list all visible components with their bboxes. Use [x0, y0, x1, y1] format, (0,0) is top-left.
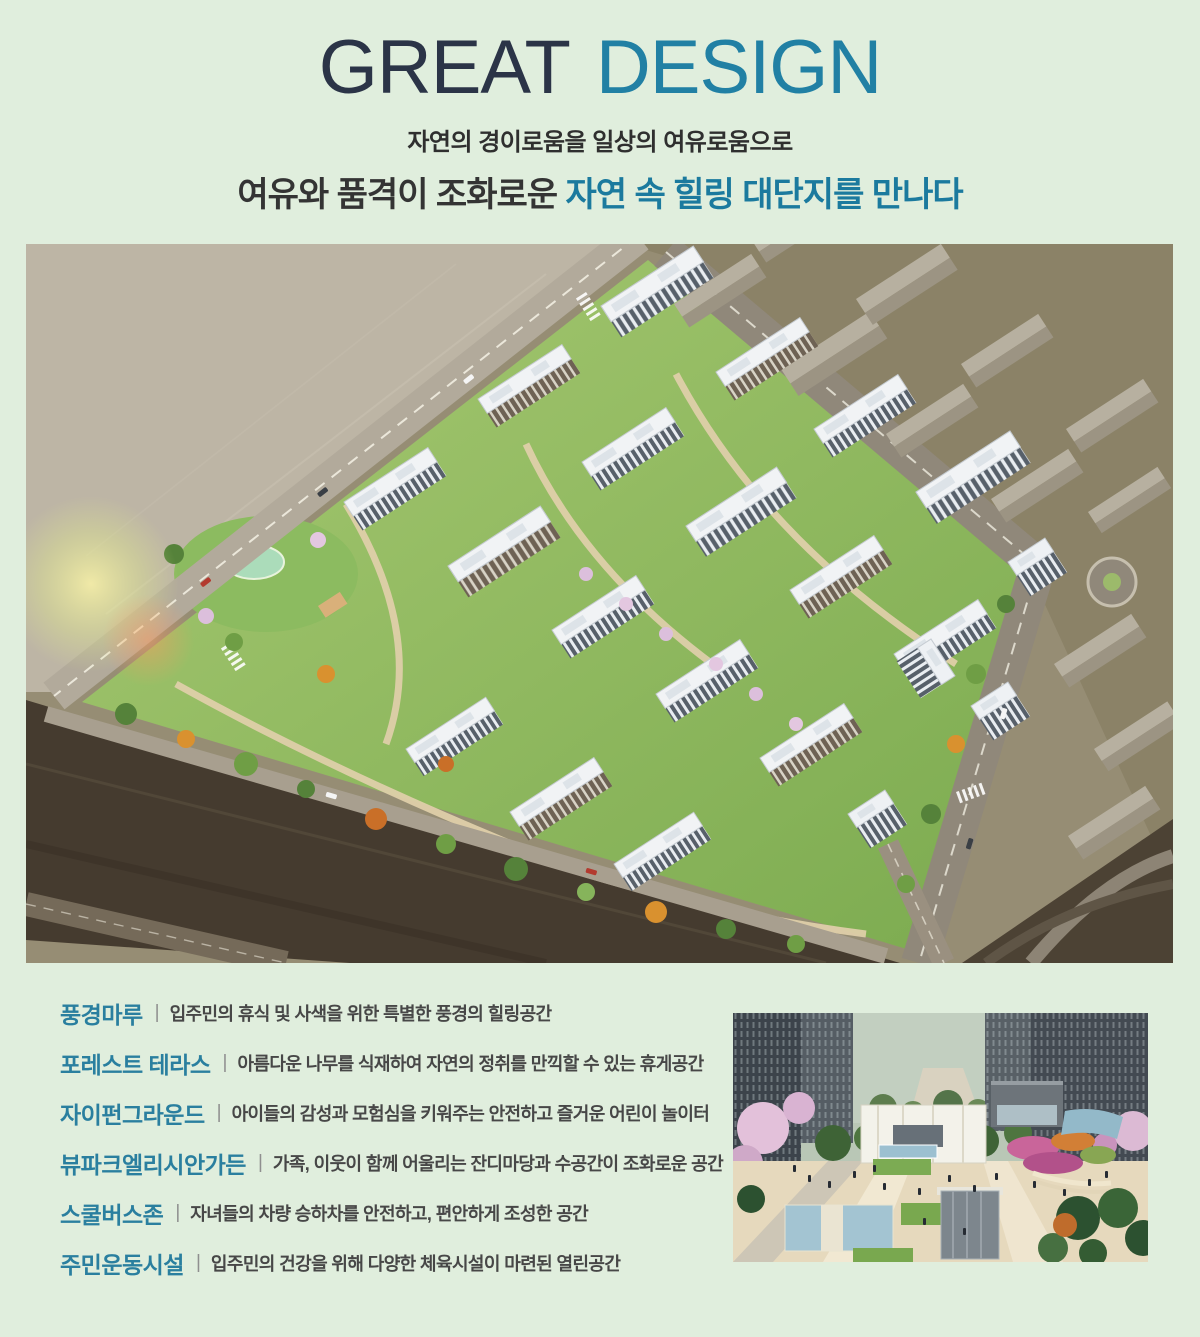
- feature-label: 포레스트 테라스: [60, 1046, 211, 1080]
- promo-page: GREATDESIGN 자연의 경이로움을 일상의 여유로움으로 여유와 품격이…: [0, 0, 1200, 1337]
- feature-description: 가족, 이웃이 함께 어울리는 잔디마당과 수공간이 조화로운 공간: [273, 1150, 723, 1176]
- title-design: DESIGN: [596, 25, 881, 110]
- headline: 여유와 품격이 조화로운 자연 속 힐링 대단지를 만나다: [0, 167, 1200, 216]
- feature-divider: |: [217, 1102, 222, 1124]
- feature-row: 주민운동시설 | 입주민의 건강을 위해 다양한 체육시설이 마련된 열린공간: [60, 1238, 720, 1288]
- community-garden-rendering: [733, 1013, 1148, 1262]
- feature-row: 스쿨버스존 | 자녀들의 차량 승하차를 안전하고, 편안하게 조성한 공간: [60, 1188, 720, 1238]
- headline-accent: 자연 속 힐링 대단지를 만나다: [565, 176, 962, 214]
- feature-description: 입주민의 건강을 위해 다양한 체육시설이 마련된 열린공간: [211, 1250, 620, 1276]
- subtitle: 자연의 경이로움을 일상의 여유로움으로: [0, 122, 1200, 157]
- header: GREATDESIGN 자연의 경이로움을 일상의 여유로움으로 여유와 품격이…: [0, 0, 1200, 216]
- feature-label: 스쿨버스존: [60, 1196, 163, 1230]
- garden-pavilion: [991, 1081, 1063, 1127]
- lens-flare: [102, 594, 194, 686]
- feature-label: 주민운동시설: [60, 1246, 184, 1280]
- feature-divider: |: [223, 1052, 228, 1074]
- feature-divider: |: [258, 1152, 263, 1174]
- feature-list: 풍경마루 | 입주민의 휴식 및 사색을 위한 특별한 풍경의 힐링공간 포레스…: [60, 988, 720, 1288]
- reflecting-pool: [785, 1205, 893, 1251]
- feature-description: 아이들의 감성과 모험심을 키워주는 안전하고 즐거운 어린이 놀이터: [232, 1100, 710, 1126]
- feature-row: 뷰파크엘리시안가든 | 가족, 이웃이 함께 어울리는 잔디마당과 수공간이 조…: [60, 1138, 720, 1188]
- headline-prefix: 여유와 품격이 조화로운: [237, 176, 565, 214]
- feature-description: 자녀들의 차량 승하차를 안전하고, 편안하게 조성한 공간: [190, 1200, 588, 1226]
- feature-row: 풍경마루 | 입주민의 휴식 및 사색을 위한 특별한 풍경의 힐링공간: [60, 988, 720, 1038]
- glass-structure: [937, 1187, 1003, 1259]
- feature-divider: |: [155, 1002, 160, 1024]
- feature-row: 자이펀그라운드 | 아이들의 감성과 모험심을 키워주는 안전하고 즐거운 어린…: [60, 1088, 720, 1138]
- feature-label: 풍경마루: [60, 996, 143, 1030]
- garden-illustration: [733, 1013, 1148, 1262]
- feature-label: 자이펀그라운드: [60, 1096, 205, 1130]
- feature-label: 뷰파크엘리시안가든: [60, 1146, 246, 1180]
- title-great: GREAT: [319, 25, 570, 110]
- feature-description: 아름다운 나무를 식재하여 자연의 정취를 만끽할 수 있는 휴게공간: [237, 1050, 703, 1076]
- feature-divider: |: [196, 1252, 201, 1274]
- feature-divider: |: [175, 1202, 180, 1224]
- feature-description: 입주민의 휴식 및 사색을 위한 특별한 풍경의 힐링공간: [170, 1000, 552, 1026]
- complex-aerial-rendering: [26, 244, 1173, 963]
- feature-row: 포레스트 테라스 | 아름다운 나무를 식재하여 자연의 정취를 만끽할 수 있…: [60, 1038, 720, 1088]
- aerial-illustration: [26, 244, 1173, 963]
- page-title: GREATDESIGN: [0, 30, 1200, 106]
